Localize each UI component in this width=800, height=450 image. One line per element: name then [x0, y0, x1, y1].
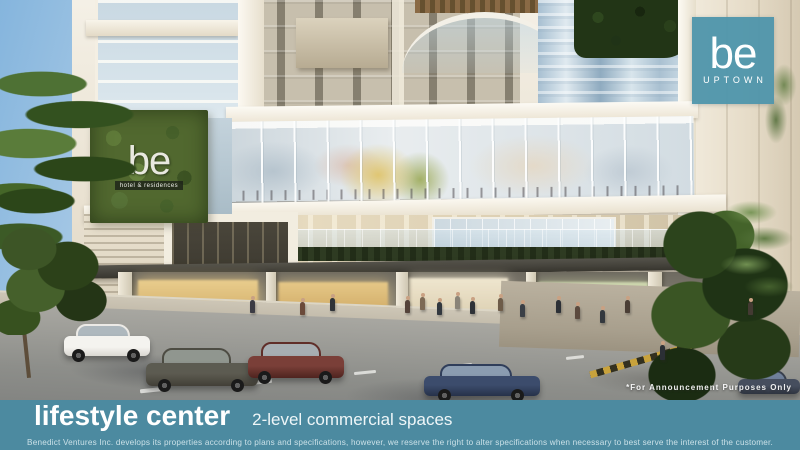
car-white-suv [64, 324, 150, 360]
caption-band: lifestyle center 2-level commercial spac… [0, 400, 800, 450]
pedestrian [498, 298, 503, 311]
pedestrian [470, 301, 475, 314]
pedestrian [455, 296, 460, 309]
disclaimer-text: Benedict Ventures Inc. develops its prop… [0, 438, 800, 447]
caption-title: lifestyle center [34, 400, 230, 432]
slide: be hotel & residences [0, 0, 800, 450]
pedestrian [748, 302, 753, 315]
facade-beam [86, 20, 238, 36]
brand-logo-word: be [710, 36, 757, 71]
pedestrian [575, 306, 580, 319]
glass-strip [206, 118, 232, 214]
wheel [231, 379, 244, 392]
rooftop-unit [296, 18, 388, 68]
wheel [158, 379, 171, 392]
pedestrian [420, 297, 425, 310]
pedestrian [250, 300, 255, 313]
pedestrian [330, 298, 335, 311]
car-blue-sedan [424, 364, 540, 400]
wheel [127, 349, 140, 362]
wheel [258, 371, 271, 384]
pedestrian [600, 310, 605, 323]
rooftop-hedge [574, 0, 694, 58]
brand-logo-plate: be UPTOWN [692, 17, 774, 104]
announcement-note: *For Announcement Purposes Only [626, 383, 792, 392]
car-maroon-sedan [248, 342, 344, 382]
pedestrian [556, 300, 561, 313]
car-dark-sedan [146, 348, 258, 390]
pedestrian [520, 304, 525, 317]
pedestrian [437, 302, 442, 315]
palm-fronds-right [715, 180, 800, 310]
pedestrian [625, 300, 630, 313]
foreground-tree [0, 220, 120, 335]
pedestrian [300, 302, 305, 315]
wheel [72, 349, 85, 362]
upper-glass-commercial-level [227, 116, 694, 207]
brand-logo-sub: UPTOWN [699, 75, 767, 85]
pedestrian [405, 300, 410, 313]
pedestrian [660, 345, 665, 360]
caption-subtitle: 2-level commercial spaces [252, 410, 452, 430]
caption-line: lifestyle center 2-level commercial spac… [34, 400, 452, 432]
wheel [319, 371, 332, 384]
